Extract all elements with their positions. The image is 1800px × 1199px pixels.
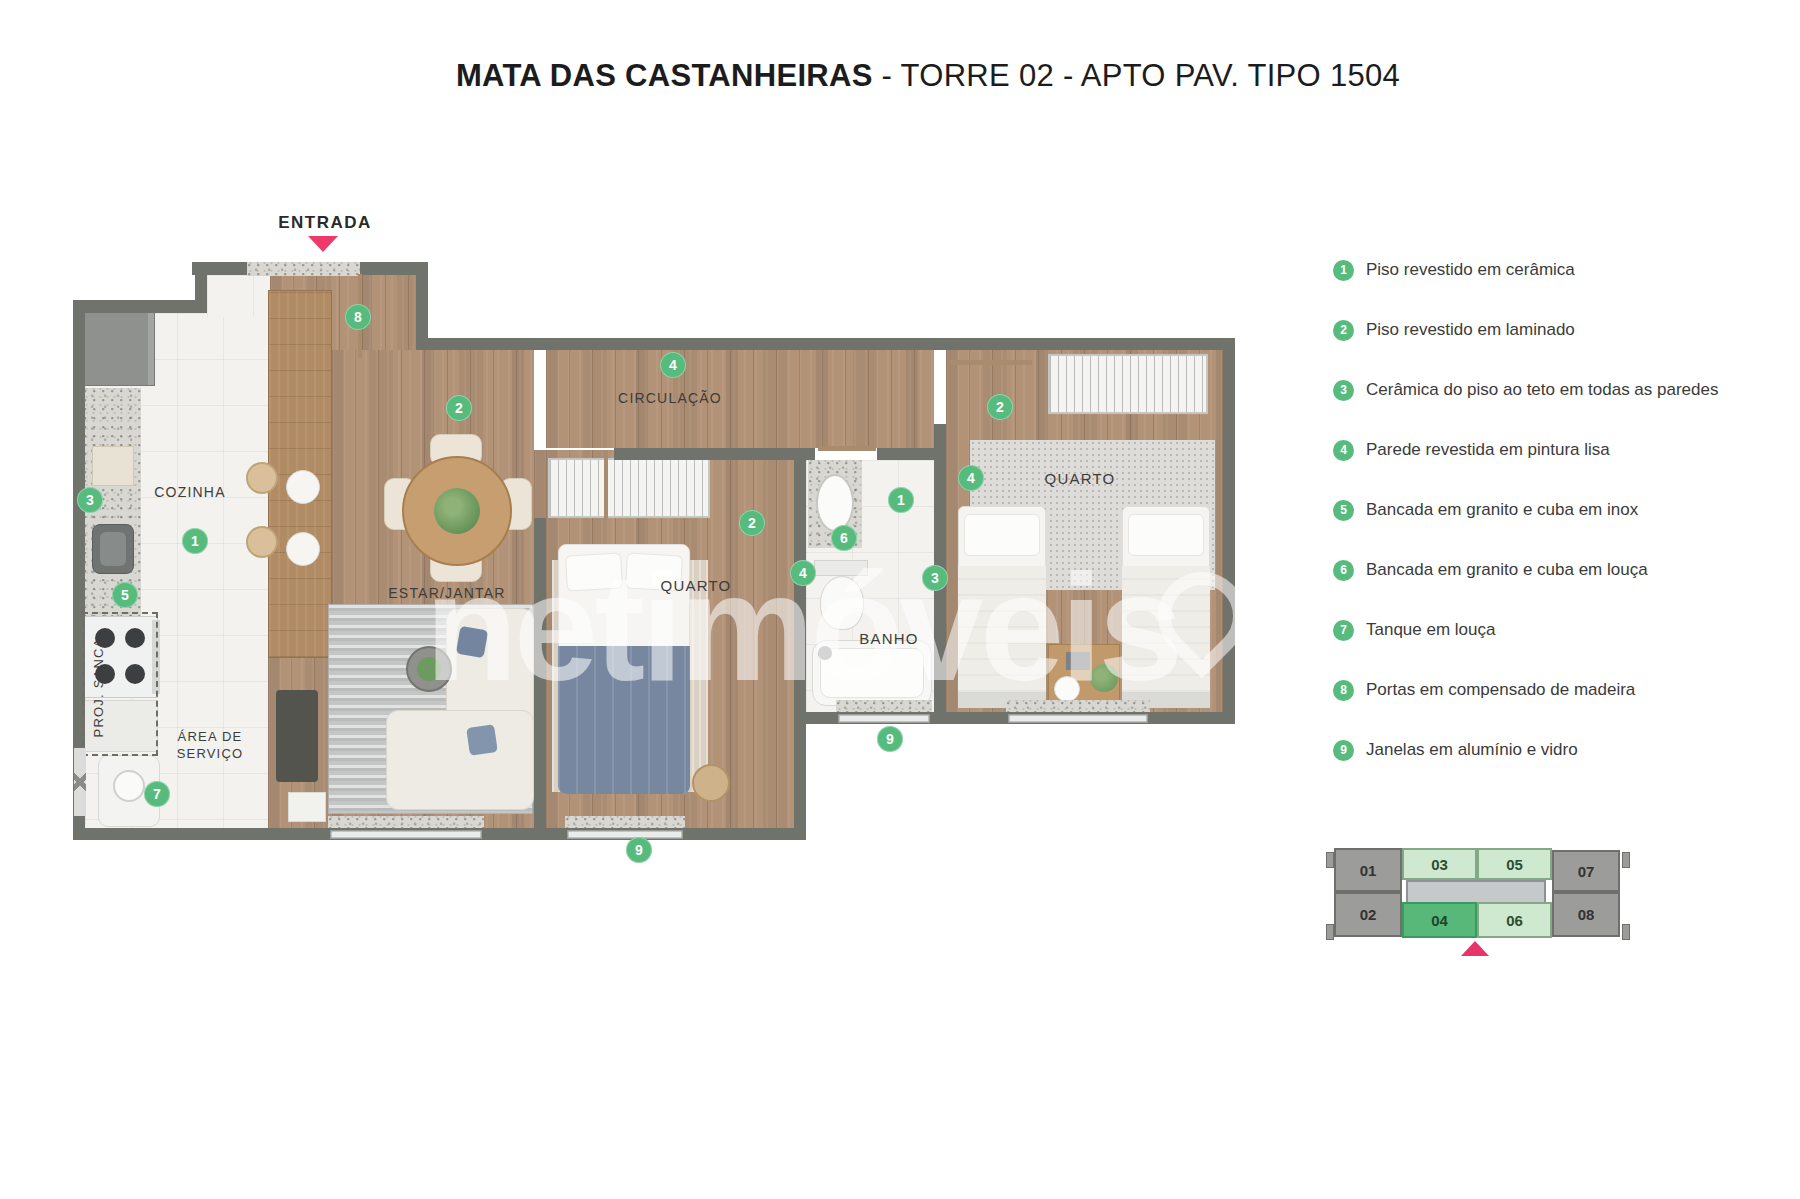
keyplan-unit-03: 03 <box>1402 848 1477 880</box>
plan-marker-6: 6 <box>831 525 857 551</box>
table-plant <box>434 488 480 534</box>
legend-item-text: Piso revestido em laminado <box>1366 320 1575 340</box>
keyplan-tab <box>1622 924 1630 940</box>
sofa-section <box>386 710 534 810</box>
floor-door-gap-wood <box>534 450 546 518</box>
wall-segment <box>416 338 1235 350</box>
legend-item-1: 1Piso revestido em cerâmica <box>1333 259 1773 281</box>
legend-item-text: Parede revestida em pintura lisa <box>1366 440 1610 460</box>
keyplan-unit-08: 08 <box>1552 892 1620 937</box>
console-cabinet <box>276 690 318 782</box>
kitchen-sink-basin <box>100 532 126 566</box>
legend-item-text: Cerâmica do piso ao teto em todas as par… <box>1366 380 1718 400</box>
legend-item-text: Portas em compensado de madeira <box>1366 680 1635 700</box>
keyplan-unit-02: 02 <box>1334 892 1402 937</box>
place-setting <box>286 470 320 504</box>
legend-item-4: 4Parede revestida em pintura lisa <box>1333 439 1773 461</box>
keyplan-tab <box>1622 852 1630 868</box>
entrance-arrow-icon <box>308 236 338 252</box>
wall-segment <box>1223 338 1235 724</box>
window <box>838 714 930 723</box>
cutting-board <box>92 446 134 486</box>
wall-segment <box>73 300 207 313</box>
sofa-pillow <box>466 724 498 756</box>
wardrobe <box>548 458 710 518</box>
bedroom1-door-leaf <box>604 450 608 518</box>
window <box>330 830 482 839</box>
keyplan-unit-05: 05 <box>1477 848 1552 880</box>
legend-number-icon: 8 <box>1333 680 1354 701</box>
room-label-service: ÁREA DE SERVIÇO <box>150 728 270 762</box>
legend-item-5: 5Bancada em granito e cuba em inox <box>1333 499 1773 521</box>
plan-marker-7: 7 <box>144 781 170 807</box>
bathroom-door-leaf <box>818 446 876 451</box>
page-title-unit: - TORRE 02 - APTO PAV. TIPO 1504 <box>873 58 1400 93</box>
keyplan-tab <box>1326 852 1334 868</box>
plan-marker-9: 9 <box>877 726 903 752</box>
legend-item-7: 7Tanque em louça <box>1333 619 1773 641</box>
wall-segment <box>877 448 934 460</box>
legend-item-text: Piso revestido em cerâmica <box>1366 260 1575 280</box>
plan-marker-3: 3 <box>77 487 103 513</box>
legend-number-icon: 3 <box>1333 380 1354 401</box>
legend-number-icon: 7 <box>1333 620 1354 641</box>
legend-item-2: 2Piso revestido em laminado <box>1333 319 1773 341</box>
stool <box>246 462 278 494</box>
legend-number-icon: 1 <box>1333 260 1354 281</box>
plan-marker-4: 4 <box>958 465 984 491</box>
keyplan-unit-07: 07 <box>1552 850 1620 892</box>
legend-item-3: 3Cerâmica do piso ao teto em todas as pa… <box>1333 379 1773 401</box>
side-table <box>692 764 730 802</box>
room-label-kitchen: COZINHA <box>130 484 250 500</box>
keyplan-unit-01: 01 <box>1334 848 1402 892</box>
keyplan-unit-06: 06 <box>1477 902 1552 938</box>
keyplan-tab <box>1326 924 1334 940</box>
legend-item-text: Tanque em louça <box>1366 620 1495 640</box>
legend-item-text: Bancada em granito e cuba em louça <box>1366 560 1648 580</box>
legend-number-icon: 5 <box>1333 500 1354 521</box>
plan-marker-2: 2 <box>739 510 765 536</box>
floorplan-page: MATA DAS CASTANHEIRAS - TORRE 02 - APTO … <box>0 0 1800 1199</box>
place-setting <box>286 532 320 566</box>
plan-marker-4: 4 <box>660 352 686 378</box>
room-label-corridor: CIRCULAÇÃO <box>590 390 750 406</box>
room-label-living: ESTAR/JANTAR <box>352 585 542 601</box>
plan-marker-1: 1 <box>888 487 914 513</box>
stool <box>246 526 278 558</box>
entrance-threshold <box>247 262 360 276</box>
window <box>1008 714 1148 723</box>
window-sill <box>328 816 484 828</box>
page-title: MATA DAS CASTANHEIRAS - TORRE 02 - APTO … <box>0 58 1800 94</box>
finishes-legend: 1Piso revestido em cerâmica2Piso revesti… <box>1333 259 1773 799</box>
legend-item-8: 8Portas em compensado de madeira <box>1333 679 1773 701</box>
doormat <box>288 792 326 822</box>
legend-item-text: Bancada em granito e cuba em inox <box>1366 500 1638 520</box>
plan-marker-4: 4 <box>790 560 816 586</box>
room-label-bedroom2: QUARTO <box>1020 470 1140 487</box>
entrance-label: ENTRADA <box>255 213 395 233</box>
legend-item-text: Janelas em alumínio e vidro <box>1366 740 1578 760</box>
room-label-proj-sanca: PROJ. SANCA <box>91 618 106 758</box>
window <box>567 830 683 839</box>
plan-marker-5: 5 <box>112 582 138 608</box>
floor-kitchen-ceramic-top <box>207 275 270 317</box>
keyplan-north-arrow-icon <box>1461 941 1489 956</box>
legend-item-6: 6Bancada em granito e cuba em louça <box>1333 559 1773 581</box>
laundry-tank-basin <box>113 770 145 802</box>
plan-marker-2: 2 <box>987 394 1013 420</box>
legend-number-icon: 4 <box>1333 440 1354 461</box>
service-window-icon <box>74 748 86 816</box>
legend-item-9: 9Janelas em alumínio e vidro <box>1333 739 1773 761</box>
fridge <box>83 310 155 386</box>
room-label-bathroom: BANHO <box>839 630 939 647</box>
keyplan: 0102030405060708 <box>1330 845 1626 960</box>
bedroom2-sliding-door <box>950 360 1032 365</box>
legend-number-icon: 9 <box>1333 740 1354 761</box>
wall-segment <box>416 262 428 350</box>
plan-marker-9: 9 <box>626 837 652 863</box>
legend-number-icon: 2 <box>1333 320 1354 341</box>
window-sill <box>565 816 685 828</box>
plan-marker-8: 8 <box>345 304 371 330</box>
plan-marker-2: 2 <box>446 395 472 421</box>
bath-sink <box>816 474 854 532</box>
wall-segment <box>614 448 815 460</box>
keyplan-corridor <box>1406 880 1546 904</box>
keyplan-unit-04: 04 <box>1402 902 1477 938</box>
wardrobe <box>1048 354 1208 414</box>
legend-number-icon: 6 <box>1333 560 1354 581</box>
plan-marker-1: 1 <box>182 528 208 554</box>
plan-marker-3: 3 <box>922 565 948 591</box>
page-title-project: MATA DAS CASTANHEIRAS <box>456 58 873 93</box>
room-label-bedroom1: QUARTO <box>636 577 756 594</box>
